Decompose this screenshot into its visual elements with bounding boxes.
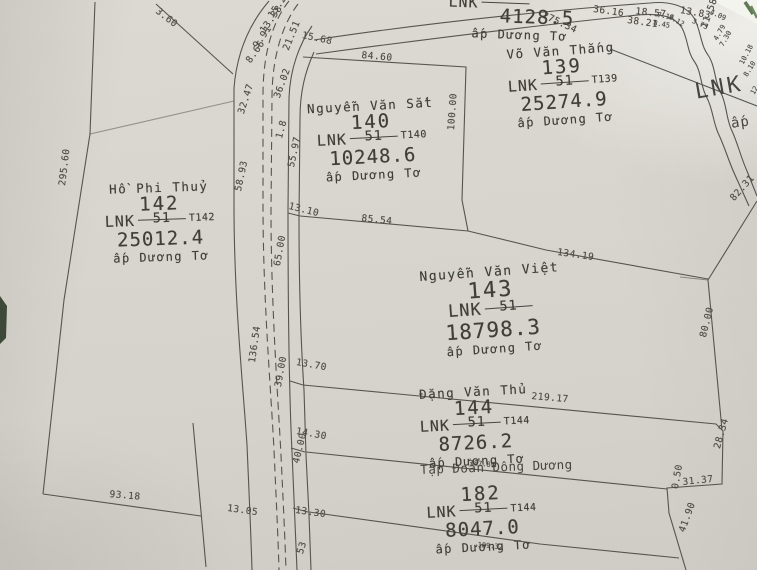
parcel-140: Nguyễn Văn Sắt 140 LNK 51 T140 10248.6 ấ… (290, 95, 454, 186)
parcel-142: Hồ Phi Thuỷ 142 LNK 51 T142 25012.4 ấp D… (79, 178, 242, 266)
parcel-area: 8047.0 (445, 518, 521, 541)
fraction-line: 51 (541, 80, 589, 86)
parcel-144: Đặng Văn Thủ 144 LNK 51 T144 8726.2 ấp D… (388, 381, 562, 473)
dark-edge-sliver-left (0, 296, 7, 344)
parcel-top-partial: LNK 4128.5 ấp Dương Tơ (444, 0, 596, 45)
land-code: LNK (448, 0, 479, 11)
east-boundary-80-00 (708, 280, 722, 430)
fraction-line: 51 (485, 305, 533, 311)
parcel-139: Võ Văn Thắng 139 LNK 51 T139 25274.9 ấp … (480, 39, 645, 133)
southwest-road-line (193, 423, 206, 567)
fraction-line: 51 (459, 508, 507, 514)
stray-label: ấp (730, 113, 751, 131)
land-code: LNK (105, 214, 136, 230)
fraction-line (482, 2, 530, 7)
land-code: LNK (419, 418, 450, 435)
land-code: LNK (426, 504, 457, 521)
parcel-143: Nguyễn Văn Việt 143 LNK 51 18798.3 ấp Dư… (399, 260, 585, 363)
fraction-line: 51 (350, 135, 398, 141)
sheet-ref: T140 (401, 130, 428, 141)
sheet-ref: T144 (504, 416, 531, 427)
sheet-ref: T144 (510, 503, 537, 514)
fraction-line: 51 (138, 218, 186, 223)
map-lines (0, 0, 757, 570)
parcel-182: 182 LNK 51 T144 8047.0 ấp Dương Tơ (395, 481, 568, 559)
land-code: LNK (316, 132, 347, 149)
diagonal-82-31 (708, 201, 757, 280)
fraction-line: 51 (453, 421, 501, 427)
cadastral-map-scan: 3.6015.2513.389.918.6621.5115.6832.4736.… (0, 0, 757, 570)
sheet-ref: T139 (591, 74, 618, 86)
sheet-ref: T142 (189, 213, 215, 224)
parcel-area: 8726.2 (438, 432, 514, 455)
parcel-area: 25012.4 (117, 228, 205, 250)
land-code-row: LNK (448, 0, 533, 12)
north-boundary-142 (90, 101, 234, 134)
